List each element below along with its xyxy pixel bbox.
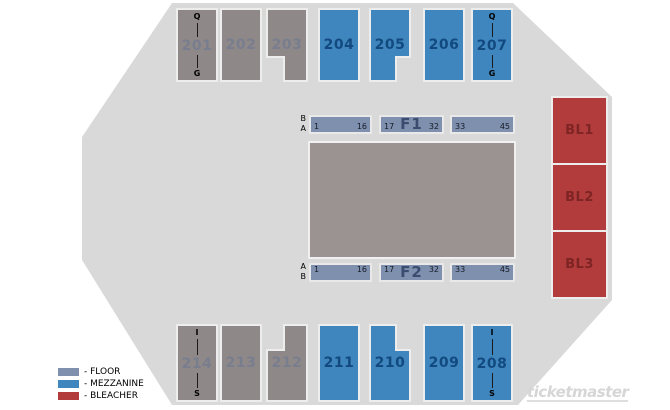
row-range-top: I (196, 329, 199, 337)
row-label: B (293, 114, 306, 124)
row-range-line (197, 55, 198, 69)
seat-number: 17 (384, 123, 394, 131)
legend-label: - BLEACHER (84, 392, 138, 401)
row-label: A (293, 262, 306, 272)
seat-number: 16 (357, 266, 367, 274)
floor-row-labels-f2: A B (293, 262, 306, 282)
section-bl3[interactable]: BL3 (551, 230, 608, 299)
floor-block-f2-33-45[interactable]: 3345 (450, 263, 515, 282)
section-202[interactable]: 202 (220, 8, 262, 82)
row-range-bottom: G (489, 70, 496, 78)
section-201[interactable]: Q 201 G (176, 8, 218, 82)
section-label: BL2 (565, 191, 594, 205)
section-label: 207 (477, 39, 508, 53)
row-range-line (492, 373, 493, 389)
row-range-line (492, 23, 493, 37)
row-range-bottom: S (489, 390, 495, 398)
row-range-bottom: S (194, 390, 200, 398)
section-notch (266, 56, 285, 82)
seat-number: 45 (500, 123, 510, 131)
floor-block-f1[interactable]: F1 1732 (379, 115, 444, 134)
section-label: 202 (226, 38, 257, 52)
section-label: 214 (182, 357, 213, 371)
legend-label: - FLOOR (84, 368, 120, 377)
section-208[interactable]: I 208 S (471, 324, 513, 402)
seat-number: 16 (357, 123, 367, 131)
section-notch (395, 56, 411, 82)
legend-item-bleacher: - BLEACHER (58, 392, 144, 400)
legend-item-mezzanine: - MEZZANINE (58, 380, 144, 388)
seat-number: 45 (500, 266, 510, 274)
legend-label: - MEZZANINE (84, 380, 144, 389)
section-bl2[interactable]: BL2 (551, 163, 608, 232)
row-range-line (492, 55, 493, 69)
floor-block-f1-1-16[interactable]: 116 (309, 115, 372, 134)
section-label: 206 (429, 38, 460, 52)
row-range-top: Q (489, 13, 496, 21)
seat-number: 17 (384, 266, 394, 274)
section-209[interactable]: 209 (423, 324, 465, 402)
mezzanine-color-swatch (58, 380, 79, 388)
floor-block-f2-1-16[interactable]: 116 (309, 263, 372, 282)
section-211[interactable]: 211 (318, 324, 360, 402)
section-label: 210 (375, 356, 406, 370)
row-label: B (293, 272, 306, 282)
section-label: 204 (324, 38, 355, 52)
section-label: 213 (226, 356, 257, 370)
section-label: 203 (272, 38, 303, 52)
seat-number: 1 (314, 123, 319, 131)
seat-number: 33 (455, 123, 465, 131)
legend: - FLOOR - MEZZANINE - BLEACHER (58, 368, 144, 404)
seat-number: 33 (455, 266, 465, 274)
seat-number: 1 (314, 266, 319, 274)
section-notch (395, 324, 411, 351)
section-label: 208 (477, 357, 508, 371)
section-214[interactable]: I 214 S (176, 324, 218, 402)
floor-row-labels-f1: B A (293, 114, 306, 134)
section-213[interactable]: 213 (220, 324, 262, 402)
floor-color-swatch (58, 368, 79, 376)
row-range-line (197, 373, 198, 389)
row-range-line (492, 339, 493, 355)
row-range-line (197, 339, 198, 355)
section-label: BL3 (565, 258, 594, 272)
section-label: 212 (272, 356, 303, 370)
row-range-top: I (491, 329, 494, 337)
section-label: 201 (182, 39, 213, 53)
section-label: BL1 (565, 124, 594, 138)
section-207[interactable]: Q 207 G (471, 8, 513, 82)
section-label: 209 (429, 356, 460, 370)
section-label: 211 (324, 356, 355, 370)
section-bl1[interactable]: BL1 (551, 96, 608, 165)
bleacher-color-swatch (58, 392, 79, 400)
floor-block-f2[interactable]: F2 1732 (379, 263, 444, 282)
row-range-line (197, 23, 198, 37)
floor-block-f1-33-45[interactable]: 3345 (450, 115, 515, 134)
legend-item-floor: - FLOOR (58, 368, 144, 376)
seating-map: Q 201 G 202 203 204 205 206 Q 207 G B A … (0, 0, 670, 410)
seat-number: 32 (429, 266, 439, 274)
ticketmaster-logo: ticketmaster (527, 385, 628, 402)
seat-number: 32 (429, 123, 439, 131)
row-range-bottom: G (194, 70, 201, 78)
section-204[interactable]: 204 (318, 8, 360, 82)
stage-floor (308, 141, 516, 259)
section-206[interactable]: 206 (423, 8, 465, 82)
section-label: 205 (375, 38, 406, 52)
row-range-top: Q (194, 13, 201, 21)
row-label: A (293, 124, 306, 134)
section-notch (266, 324, 285, 351)
